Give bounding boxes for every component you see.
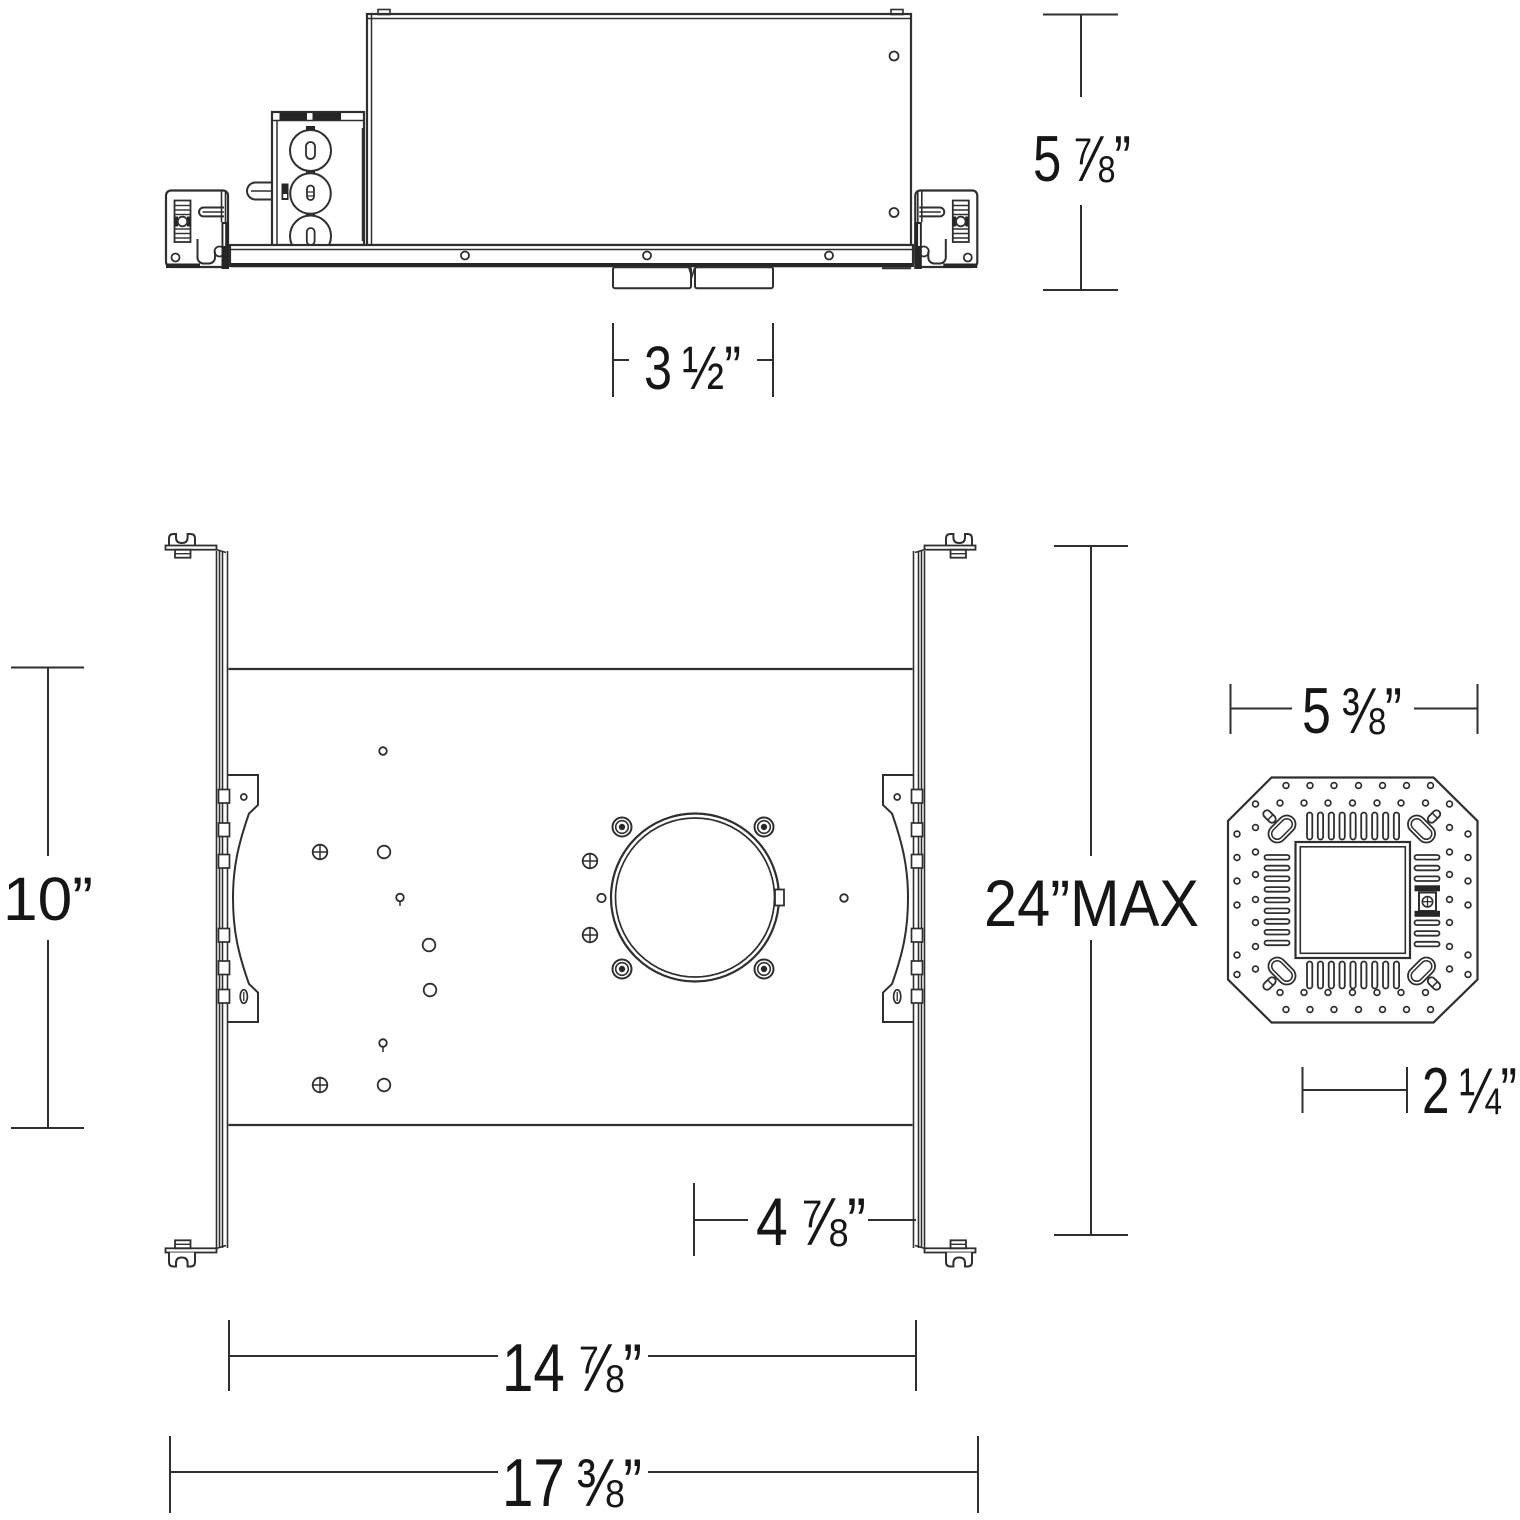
svg-text:5 ⅜”: 5 ⅜” bbox=[1302, 674, 1402, 747]
svg-text:4 ⅞”: 4 ⅞” bbox=[756, 1184, 866, 1260]
svg-text:17 ⅜”: 17 ⅜” bbox=[502, 1445, 642, 1520]
svg-text:10”: 10” bbox=[3, 865, 93, 933]
svg-text:14 ⅞”: 14 ⅞” bbox=[502, 1330, 642, 1406]
svg-text:2 ¼”: 2 ¼” bbox=[1422, 1054, 1517, 1127]
svg-text:5 ⅞”: 5 ⅞” bbox=[1033, 122, 1131, 195]
svg-text:24”MAX: 24”MAX bbox=[984, 866, 1199, 940]
svg-text:3 ½”: 3 ½” bbox=[644, 334, 741, 402]
